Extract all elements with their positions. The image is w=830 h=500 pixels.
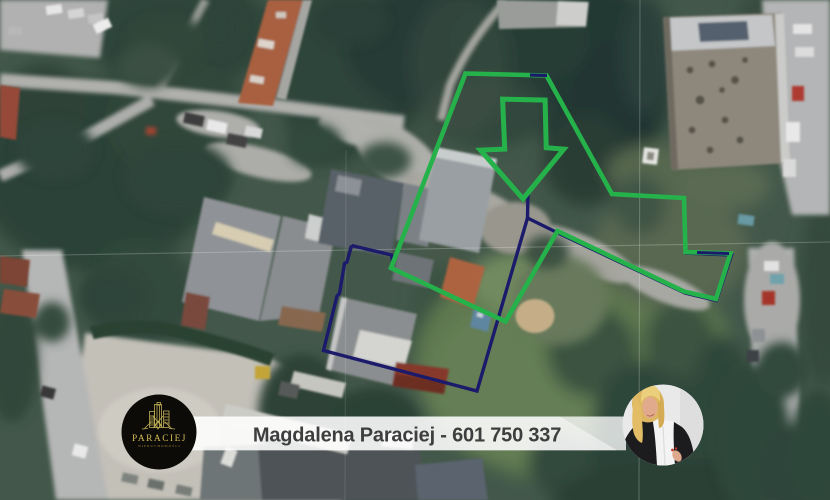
svg-text:Magdalena Paraciej - 601 750 3: Magdalena Paraciej - 601 750 337 (253, 425, 561, 447)
svg-text:PARACIEJ: PARACIEJ (132, 434, 187, 444)
svg-text:NIERUCHOMOŚCI: NIERUCHOMOŚCI (138, 443, 181, 448)
